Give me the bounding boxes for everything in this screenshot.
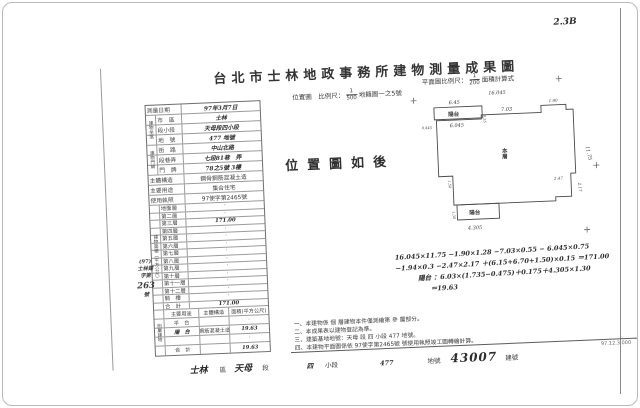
floor-label: 第五層 <box>160 234 187 242</box>
dim-top: 16.045 <box>488 90 506 97</box>
floor-label: 第三層 <box>159 219 186 227</box>
footer-subsection-label: 小段 <box>325 359 338 370</box>
dim-balcony-left: 0.445 <box>422 126 433 130</box>
location-map-note: 位置圖如後 <box>285 151 396 175</box>
floor-label: 地面層 <box>159 204 186 212</box>
dim-top-mid: 7.03 <box>501 107 512 113</box>
annex-use: 平 台 <box>163 318 199 328</box>
floor-label: 第六層 <box>160 242 187 250</box>
row-label: 測量日期 <box>146 104 182 114</box>
building-info-table: 測量日期97年3月7日 市 區士林 段小段天母段四小段 地 號477 地號 街 … <box>144 100 270 357</box>
dim-balcony-depth: 0.55 <box>482 115 486 124</box>
annex-col-use: 主要用途 <box>163 309 199 319</box>
row-label: 主體構造 <box>148 174 184 184</box>
scan-left-edge <box>100 69 114 371</box>
floor-label: 騎 樓 <box>162 294 189 302</box>
floor-label: 第十層 <box>162 272 189 280</box>
annex-col-area: 面積(平方公尺) <box>229 306 268 316</box>
dim-left-step: 1.50 <box>447 180 452 189</box>
scanned-survey-document: 2.3B 台北市士林地政事務所建物測量成果圖 位置圖 比例尺：1500地籍圖一之… <box>0 0 640 408</box>
footer-subsection: 四 <box>306 360 313 370</box>
annex-structure: 鋼筋混凝土造 <box>200 326 230 335</box>
row-label: 段小段 <box>155 124 182 134</box>
row-label: 市 區 <box>155 114 182 124</box>
annex-area: · <box>230 333 269 343</box>
group-label-address: 建物門牌 <box>147 146 157 174</box>
dim-notch-width: 2.47 <box>553 176 564 181</box>
footer-building-label: 建號 <box>505 352 518 363</box>
annex-area: · <box>229 315 268 325</box>
floor-label: 第十二層 <box>162 287 189 295</box>
room-label: 本層 <box>501 147 508 161</box>
dim-right: 11.75 <box>584 146 593 161</box>
row-label: 使用執照 <box>149 194 185 204</box>
floor-label: 第二層 <box>159 212 186 220</box>
floor-label: 第九層 <box>161 264 188 272</box>
floor-label: 第八層 <box>161 257 188 265</box>
footer-district-label: 區 <box>219 364 226 374</box>
balcony-bottom-label: 陽台 <box>469 208 481 216</box>
annex-structure <box>200 335 230 344</box>
annex-total-value: 19.63 <box>231 342 270 353</box>
footer-parcel-number: 477 <box>380 359 394 368</box>
dim-balcony-bottom-left: 1.30 <box>451 211 456 220</box>
stamp-suffix: 號 <box>136 292 156 300</box>
footer-building-number: 43007 <box>450 349 497 365</box>
floor-plan-drawing: 16.045 6.45 6.045 0.445 0.55 7.03 1.90 1… <box>390 70 609 261</box>
balcony-top-label: 陽台 <box>448 110 460 118</box>
floor-label: 第四層 <box>160 227 187 235</box>
group-label-location: 建物坐落 <box>146 116 156 144</box>
location-scale-line: 位置圖 比例尺：1500地籍圖一之5號 <box>292 87 402 103</box>
footer-parcel-label: 地號 <box>427 355 440 366</box>
footer-section: 天母 <box>234 361 253 375</box>
print-run-code: 97.12.3,000 <box>601 340 631 347</box>
stamp-number: 263 <box>136 280 156 293</box>
annex-use <box>164 336 200 346</box>
footer-district: 士林 <box>189 363 208 377</box>
row-label: 段巷弄 <box>157 154 184 164</box>
row-label: 街 路 <box>156 144 183 154</box>
annex-area: 19.63 <box>230 324 269 334</box>
row-label: 地 號 <box>156 134 183 144</box>
row-label: 主要用途 <box>149 184 185 194</box>
floor-total-label: 合 計 <box>163 302 190 310</box>
location-scale-denominator: 500 <box>346 94 357 101</box>
scan-page: 2.3B 台北市士林地政事務所建物測量成果圖 位置圖 比例尺：1500地籍圖一之… <box>89 0 635 408</box>
handwritten-corner-mark: 2.3B <box>553 17 577 28</box>
floor-label: 第七層 <box>161 249 188 257</box>
row-label: 門 牌 <box>157 164 184 174</box>
dim-balcony-inner: 6.045 <box>450 123 465 130</box>
location-scale-fraction: 1500 <box>346 89 357 101</box>
dim-bottom-balcony: 4.305 <box>467 225 483 232</box>
dim-balcony-outer: 6.45 <box>449 100 460 106</box>
section-label-annex: 附屬建物 <box>154 311 165 353</box>
dim-top-right: 1.90 <box>549 98 559 103</box>
location-scale-label: 位置圖 比例尺： <box>292 92 344 102</box>
annex-total-structure <box>201 344 231 354</box>
dim-notch-height: 2.17 <box>577 181 583 192</box>
annex-use: 陽 台 <box>164 327 200 337</box>
annex-total-label: 合 計 <box>165 345 201 355</box>
location-scale-numerator: 1 <box>349 89 353 95</box>
floor-label: 第十一層 <box>162 279 189 287</box>
annex-structure <box>199 317 229 326</box>
footer-section-label: 段 <box>262 362 269 372</box>
annex-col-structure: 主體構造 <box>199 308 229 317</box>
registration-stamp: (97) 士林建 字第 263 號 <box>135 259 157 300</box>
